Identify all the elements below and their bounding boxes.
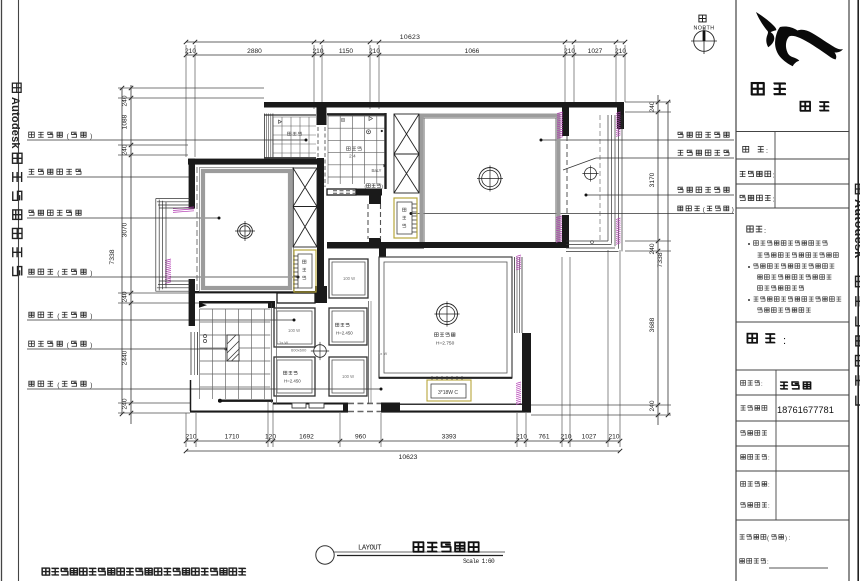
svg-text:) :: ) : (785, 536, 791, 542)
svg-text::: : (766, 148, 768, 155)
svg-text:18761677781: 18761677781 (777, 405, 834, 415)
svg-text:H=2.750: H=2.750 (436, 341, 455, 347)
svg-text:): ) (90, 382, 92, 389)
svg-text:1066: 1066 (465, 48, 480, 55)
svg-text:LAYOUT: LAYOUT (358, 545, 382, 553)
svg-text:240: 240 (122, 144, 129, 155)
svg-text:2440: 2440 (122, 350, 129, 365)
svg-text:(: ( (767, 536, 769, 542)
svg-text::: : (773, 173, 775, 180)
svg-text:H=2.450: H=2.450 (336, 331, 353, 336)
svg-text:2880: 2880 (247, 48, 262, 55)
svg-text:): ) (90, 313, 92, 320)
svg-text:): ) (90, 270, 92, 277)
svg-text:210: 210 (516, 434, 527, 441)
svg-text:Scale 1:60: Scale 1:60 (463, 558, 495, 565)
svg-text:1x W: 1x W (279, 340, 288, 345)
svg-text:1692: 1692 (299, 434, 314, 441)
svg-text:10623: 10623 (400, 34, 420, 41)
svg-text:3170: 3170 (649, 172, 656, 187)
svg-text:H=2.450: H=2.450 (284, 379, 301, 384)
svg-text::: : (783, 335, 786, 347)
svg-text::: : (764, 226, 766, 235)
svg-text:): ) (90, 133, 92, 140)
svg-text:Autodesk: Autodesk (852, 199, 860, 258)
svg-text:): ) (732, 207, 734, 214)
svg-text:3688: 3688 (649, 317, 656, 332)
svg-text:100 W: 100 W (342, 374, 354, 379)
svg-text:2.4: 2.4 (349, 154, 356, 160)
svg-text:240: 240 (649, 101, 656, 112)
svg-text:1027: 1027 (582, 434, 597, 441)
svg-text:7338: 7338 (657, 252, 664, 267)
svg-text:1027: 1027 (588, 48, 603, 55)
svg-text:BaLY: BaLY (372, 168, 382, 173)
svg-text:100 W: 100 W (343, 276, 355, 281)
svg-text:10623: 10623 (399, 454, 418, 461)
svg-text:600x600: 600x600 (291, 348, 307, 353)
svg-text:960: 960 (355, 434, 366, 441)
svg-text:1088: 1088 (122, 114, 129, 129)
svg-text::: : (773, 197, 775, 204)
svg-text:3070: 3070 (122, 222, 129, 237)
svg-text:Autodesk: Autodesk (9, 97, 21, 149)
svg-text:761: 761 (538, 434, 549, 441)
svg-text:1710: 1710 (225, 434, 240, 441)
svg-text:3393: 3393 (442, 434, 457, 441)
svg-text:240: 240 (649, 400, 656, 411)
svg-text:240: 240 (122, 95, 129, 106)
svg-text:1150: 1150 (339, 48, 354, 55)
svg-text:1x W: 1x W (378, 351, 387, 356)
svg-text:3*18W C: 3*18W C (438, 390, 458, 396)
svg-text:240: 240 (649, 243, 656, 254)
svg-text:): ) (90, 342, 92, 349)
svg-text:7338: 7338 (109, 249, 116, 264)
svg-text:240: 240 (122, 398, 129, 409)
svg-text:100 W: 100 W (288, 328, 300, 333)
